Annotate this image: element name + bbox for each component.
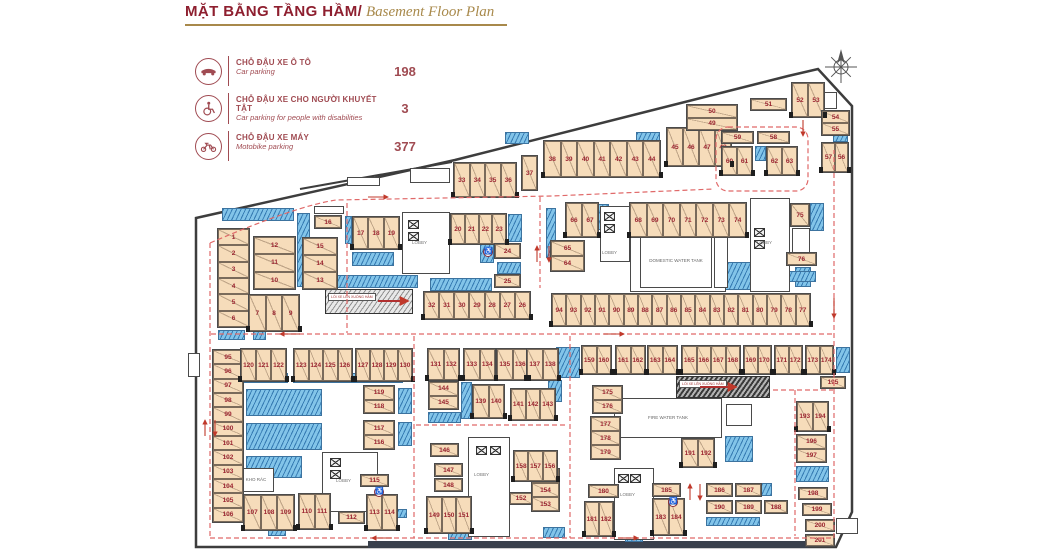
room-label: LOBBY	[602, 250, 617, 255]
column	[451, 192, 455, 198]
parking-stall-193: 193	[797, 402, 813, 431]
parking-stall-24: 24	[495, 244, 520, 258]
parking-stall-175: 175	[593, 386, 622, 400]
parking-stall-20: 20	[451, 214, 465, 244]
column	[291, 376, 295, 382]
column	[515, 192, 519, 198]
column	[579, 369, 583, 375]
stall-group: 181182	[584, 501, 614, 537]
motorbike-parking-area	[430, 278, 492, 291]
parking-stall-74: 74	[729, 203, 746, 237]
parking-stall-122: 122	[271, 349, 286, 381]
column	[612, 531, 616, 537]
column	[730, 161, 734, 167]
stall-group: 117116	[363, 420, 395, 450]
parking-stall-146: 146	[431, 444, 458, 456]
parking-stall-47: 47	[699, 128, 715, 166]
parking-stall-194: 194	[813, 402, 829, 431]
column	[424, 528, 428, 534]
stall-group: 173174	[805, 345, 834, 375]
parking-stall-170: 170	[758, 346, 772, 374]
parking-stall-107: 107	[244, 495, 261, 530]
disabled-parking-icon: ♿	[668, 497, 678, 507]
parking-stall-120: 120	[241, 349, 256, 381]
parking-stall-187: 187	[736, 484, 761, 496]
column	[832, 369, 836, 375]
motorbike-parking-area	[428, 412, 461, 423]
column	[421, 314, 425, 320]
parking-stall-86: 86	[667, 294, 681, 326]
parking-stall-2: 2	[218, 245, 249, 261]
stall-group: 123124125126	[293, 348, 353, 382]
stall-group: 139140	[472, 384, 505, 419]
disabled-parking-icon: ♿	[483, 247, 493, 257]
parking-stall-186: 186	[707, 484, 732, 496]
parking-stall-88: 88	[638, 294, 652, 326]
parking-stall-77: 77	[796, 294, 810, 326]
parking-stall-199: 199	[803, 504, 831, 515]
parking-stall-32: 32	[424, 292, 439, 319]
parking-stall-129: 129	[384, 349, 398, 381]
stall-group: 20212223	[450, 213, 507, 245]
room	[714, 234, 728, 288]
parking-stall-176: 176	[593, 400, 622, 414]
column	[613, 369, 617, 375]
parking-stall-168: 168	[726, 346, 741, 374]
parking-stall-200: 200	[806, 520, 834, 531]
parking-stall-196: 196	[797, 435, 826, 449]
parking-stall-127: 127	[356, 349, 370, 381]
parking-stall-152: 152	[510, 493, 532, 504]
column	[794, 426, 798, 432]
motorbike-parking-area	[398, 388, 412, 414]
parking-stall-133: 133	[464, 349, 480, 380]
parking-stall-92: 92	[581, 294, 595, 326]
stall-group: 107108109	[243, 494, 295, 531]
room	[410, 168, 450, 183]
stall-group: 37	[521, 155, 538, 191]
stall-group: 175176	[592, 385, 623, 414]
parking-stall-4: 4	[218, 278, 249, 294]
column	[461, 375, 465, 381]
parking-stall-192: 192	[698, 439, 714, 467]
stall-group: 193194	[796, 401, 829, 432]
parking-stall-81: 81	[738, 294, 752, 326]
column	[827, 426, 831, 432]
room-label: LOBBY	[620, 492, 635, 497]
stall-group: 6564	[550, 240, 585, 272]
stall-group: 163164	[647, 345, 678, 375]
parking-stall-40: 40	[577, 141, 594, 177]
column	[819, 167, 823, 173]
stall-group: 120121122	[240, 348, 287, 382]
motorbike-parking-area	[755, 146, 766, 161]
parking-stall-93: 93	[566, 294, 580, 326]
car-ramp: LỐI XE LÊN XUỐNG HẦM	[325, 289, 413, 314]
room	[836, 518, 858, 534]
parking-stall-114: 114	[382, 495, 397, 530]
column	[541, 172, 545, 178]
parking-stall-21: 21	[465, 214, 479, 244]
stall-group: 171172	[774, 345, 803, 375]
stall-group: 949392919089888786858483828180797877	[551, 293, 811, 327]
parking-stall-151: 151	[456, 497, 471, 533]
parking-stall-183: 183	[653, 499, 669, 535]
parking-stall-113: 113	[367, 495, 382, 530]
column	[679, 462, 683, 468]
parking-stall-128: 128	[370, 349, 384, 381]
column	[494, 375, 498, 381]
parking-stall-46: 46	[683, 128, 699, 166]
parking-stall-112: 112	[339, 512, 364, 523]
parking-stall-33: 33	[454, 163, 470, 197]
parking-stall-63: 63	[782, 147, 797, 175]
parking-stall-49: 49	[687, 118, 737, 131]
motorbike-parking-area	[706, 517, 760, 526]
parking-stall-123: 123	[294, 349, 309, 381]
parking-stall-153: 153	[532, 497, 559, 511]
parking-stall-94: 94	[552, 294, 566, 326]
elevator-icon	[754, 228, 765, 237]
stall-group: 110111	[298, 493, 331, 530]
column	[563, 232, 567, 238]
parking-stall-69: 69	[647, 203, 664, 237]
stall-group: 131132	[427, 348, 460, 381]
parking-stall-37: 37	[522, 156, 537, 190]
column	[683, 530, 687, 536]
stall-group: 75	[790, 203, 810, 227]
parking-stall-41: 41	[594, 141, 611, 177]
room	[468, 437, 510, 537]
parking-stall-22: 22	[479, 214, 493, 244]
parking-stall-71: 71	[680, 203, 697, 237]
column	[353, 376, 357, 382]
parking-stall-23: 23	[492, 214, 506, 244]
parking-stall-38: 38	[544, 141, 561, 177]
stall-group: 185	[652, 483, 681, 497]
motorbike-parking-area	[345, 216, 352, 244]
elevator-icon	[476, 446, 487, 455]
parking-stall-171: 171	[775, 346, 789, 374]
stall-group: 112	[338, 511, 365, 524]
column	[364, 525, 368, 531]
parking-stall-165: 165	[682, 346, 697, 374]
room-label: LOBBY	[336, 478, 351, 483]
motorbike-parking-area	[398, 422, 412, 446]
column	[503, 413, 507, 419]
parking-stall-131: 131	[428, 349, 444, 380]
stall-group: 180	[588, 484, 619, 498]
column	[529, 314, 533, 320]
column	[238, 376, 242, 382]
parking-stall-134: 134	[480, 349, 496, 380]
parking-stall-8: 8	[266, 295, 283, 331]
parking-stall-6: 6	[218, 311, 249, 327]
parking-stall-72: 72	[696, 203, 713, 237]
parking-stall-3: 3	[218, 262, 249, 278]
parking-stall-64: 64	[551, 256, 584, 271]
motorbike-parking-area	[786, 271, 816, 282]
column	[470, 413, 474, 419]
motorbike-parking-area	[836, 347, 850, 373]
stall-group: 161162	[615, 345, 646, 375]
column	[803, 369, 807, 375]
parking-stall-78: 78	[781, 294, 795, 326]
stall-group: 38394041424344	[543, 140, 661, 178]
parking-stall-17: 17	[353, 217, 368, 249]
parking-stall-73: 73	[713, 203, 730, 237]
parking-stall-18: 18	[368, 217, 383, 249]
column	[713, 462, 717, 468]
parking-stall-43: 43	[627, 141, 644, 177]
column	[664, 161, 668, 167]
parking-stall-115: 115	[361, 475, 388, 486]
parking-stall-164: 164	[663, 346, 678, 374]
parking-stall-28: 28	[485, 292, 500, 319]
parking-stall-154: 154	[532, 483, 559, 497]
motorbike-parking-area	[556, 347, 580, 378]
parking-stall-87: 87	[652, 294, 666, 326]
parking-stall-178: 178	[591, 431, 620, 445]
parking-stall-12: 12	[254, 237, 295, 254]
stall-group: 165166167168	[681, 345, 741, 375]
room	[314, 206, 344, 214]
motorbike-parking-area	[397, 509, 407, 518]
parking-stall-157: 157	[528, 451, 542, 481]
motorbike-parking-area	[246, 423, 322, 450]
column	[719, 170, 723, 176]
parking-stall-10: 10	[254, 272, 295, 289]
elevator-icon	[630, 474, 641, 483]
stall-group: 127128129130	[355, 348, 413, 382]
room	[726, 404, 752, 426]
room-label: DOMESTIC WATER TANK	[648, 257, 704, 264]
column	[764, 170, 768, 176]
parking-stall-45: 45	[667, 128, 683, 166]
parking-stall-39: 39	[561, 141, 578, 177]
stall-group: 187	[735, 483, 762, 497]
parking-stall-150: 150	[442, 497, 457, 533]
stall-group: 6263	[766, 146, 798, 176]
parking-stall-177: 177	[591, 417, 620, 431]
column	[741, 369, 745, 375]
stall-group: 200	[805, 519, 835, 532]
parking-stall-139: 139	[473, 385, 489, 418]
stall-group: 25	[494, 274, 521, 288]
parking-stall-174: 174	[820, 346, 834, 374]
parking-stall-100: 100	[213, 422, 243, 436]
stall-group: 119118	[363, 385, 395, 414]
parking-stall-68: 68	[630, 203, 647, 237]
parking-stall-29: 29	[469, 292, 484, 319]
parking-stall-84: 84	[695, 294, 709, 326]
parking-stall-11: 11	[254, 254, 295, 271]
column	[809, 321, 813, 327]
parking-stall-198: 198	[799, 488, 827, 499]
parking-stall-149: 149	[427, 497, 442, 533]
motorbike-parking-area	[543, 527, 565, 538]
parking-stall-182: 182	[599, 502, 613, 536]
motorbike-parking-area	[796, 466, 829, 482]
parking-stall-65: 65	[551, 241, 584, 256]
stall-group: 24	[494, 243, 521, 259]
stall-group: 5756	[821, 142, 849, 173]
parking-stall-190: 190	[707, 501, 732, 513]
elevator-icon	[490, 446, 501, 455]
column	[645, 369, 649, 375]
stall-group: 198	[798, 487, 828, 500]
column	[298, 326, 302, 332]
motorbike-parking-area	[505, 132, 529, 144]
column	[582, 531, 586, 537]
parking-stall-89: 89	[624, 294, 638, 326]
column	[505, 239, 509, 245]
stall-group: 113114	[366, 494, 398, 531]
parking-stall-144: 144	[429, 382, 458, 396]
parking-stall-185: 185	[653, 484, 680, 496]
stall-group: 195	[820, 376, 846, 389]
room-label: FIRE WATER TANK	[647, 414, 689, 421]
stall-group: 159160	[581, 345, 612, 375]
column	[627, 232, 631, 238]
parking-stall-130: 130	[398, 349, 412, 381]
parking-stall-166: 166	[697, 346, 712, 374]
column	[554, 415, 558, 421]
parking-stall-36: 36	[501, 163, 517, 197]
column	[524, 375, 528, 381]
parking-stall-188: 188	[765, 501, 787, 513]
parking-stall-148: 148	[435, 479, 462, 491]
parking-stall-163: 163	[648, 346, 663, 374]
parking-stall-52: 52	[792, 83, 808, 117]
stall-group: 171819	[352, 216, 400, 250]
column	[296, 524, 300, 530]
stall-group: 51	[750, 98, 787, 111]
stall-group: 76	[786, 252, 817, 266]
column	[411, 376, 415, 382]
stall-group: 149150151	[426, 496, 472, 534]
parking-stall-108: 108	[261, 495, 278, 530]
stall-group: 186	[706, 483, 733, 497]
room-label: KHO RÁC	[245, 476, 268, 483]
parking-stall-50: 50	[687, 105, 737, 118]
parking-stall-34: 34	[470, 163, 486, 197]
parking-stall-25: 25	[495, 275, 520, 287]
room-label: LOBBY	[474, 472, 489, 477]
stall-group: 5253	[791, 82, 825, 118]
parking-stall-91: 91	[595, 294, 609, 326]
elevator-icon	[330, 458, 341, 467]
parking-stall-124: 124	[309, 349, 324, 381]
parking-stall-105: 105	[213, 493, 243, 507]
parking-stall-85: 85	[681, 294, 695, 326]
column	[751, 170, 755, 176]
stall-group: 141142143	[510, 388, 556, 421]
motorbike-parking-area	[725, 436, 753, 462]
parking-stall-79: 79	[767, 294, 781, 326]
stall-group: 6667	[565, 202, 599, 238]
parking-stall-158: 158	[514, 451, 528, 481]
parking-stall-141: 141	[511, 389, 526, 420]
stall-group: 5049	[686, 104, 738, 131]
elevator-icon	[618, 474, 629, 483]
parking-stall-109: 109	[277, 495, 294, 530]
parking-stall-14: 14	[303, 255, 337, 272]
stall-group: 59	[721, 131, 754, 144]
room-label: LOBBY	[757, 240, 772, 245]
stall-group: 6061	[721, 146, 753, 176]
column	[847, 167, 851, 173]
parking-stall-111: 111	[315, 494, 331, 529]
parking-stall-1: 1	[218, 229, 249, 245]
column	[772, 369, 776, 375]
column	[470, 528, 474, 534]
parking-stall-58: 58	[758, 132, 789, 143]
column	[398, 244, 402, 250]
parking-stall-5: 5	[218, 294, 249, 310]
parking-stall-181: 181	[585, 502, 599, 536]
stall-group: 121110	[253, 236, 296, 290]
parking-stall-110: 110	[299, 494, 315, 529]
parking-stall-75: 75	[791, 204, 809, 226]
parking-stall-51: 51	[751, 99, 786, 110]
parking-stall-42: 42	[610, 141, 627, 177]
motorbike-parking-area	[810, 203, 824, 231]
parking-stall-30: 30	[454, 292, 469, 319]
stall-group: 191192	[681, 438, 715, 468]
floor-plan: DOMESTIC WATER TANKKHO RÁCFIRE WATER TAN…	[0, 0, 1044, 550]
parking-stall-116: 116	[364, 435, 394, 449]
stall-group: 147	[434, 463, 463, 477]
column	[745, 232, 749, 238]
parking-stall-132: 132	[444, 349, 460, 380]
parking-stall-197: 197	[797, 449, 826, 463]
parking-stall-27: 27	[500, 292, 515, 319]
elevator-icon	[604, 212, 615, 221]
parking-stall-66: 66	[566, 203, 582, 237]
column	[396, 525, 400, 531]
stall-group: 199	[802, 503, 832, 516]
column	[556, 476, 560, 482]
elevator-icon	[604, 224, 615, 233]
column	[549, 321, 553, 327]
column	[285, 376, 289, 382]
parking-stall-173: 173	[806, 346, 820, 374]
column	[350, 244, 354, 250]
parking-stall-135: 135	[497, 349, 513, 380]
disabled-parking-icon: ♿	[374, 487, 384, 497]
stall-group: 201	[805, 534, 835, 547]
parking-stall-189: 189	[736, 501, 761, 513]
parking-stall-62: 62	[767, 147, 782, 175]
stall-group: 152	[509, 492, 533, 505]
parking-stall-106: 106	[213, 508, 243, 522]
parking-stall-76: 76	[787, 253, 816, 265]
parking-stall-57: 57	[822, 143, 835, 172]
parking-stall-191: 191	[682, 439, 698, 467]
parking-stall-83: 83	[710, 294, 724, 326]
column	[508, 415, 512, 421]
parking-stall-55: 55	[822, 123, 849, 135]
parking-stall-156: 156	[543, 451, 557, 481]
parking-stall-167: 167	[711, 346, 726, 374]
parking-stall-145: 145	[429, 396, 458, 410]
stall-group: 33343536	[453, 162, 517, 198]
motorbike-parking-area	[222, 208, 294, 221]
parking-stall-160: 160	[597, 346, 612, 374]
room-label: LOBBY	[412, 240, 427, 245]
parking-stall-26: 26	[515, 292, 530, 319]
